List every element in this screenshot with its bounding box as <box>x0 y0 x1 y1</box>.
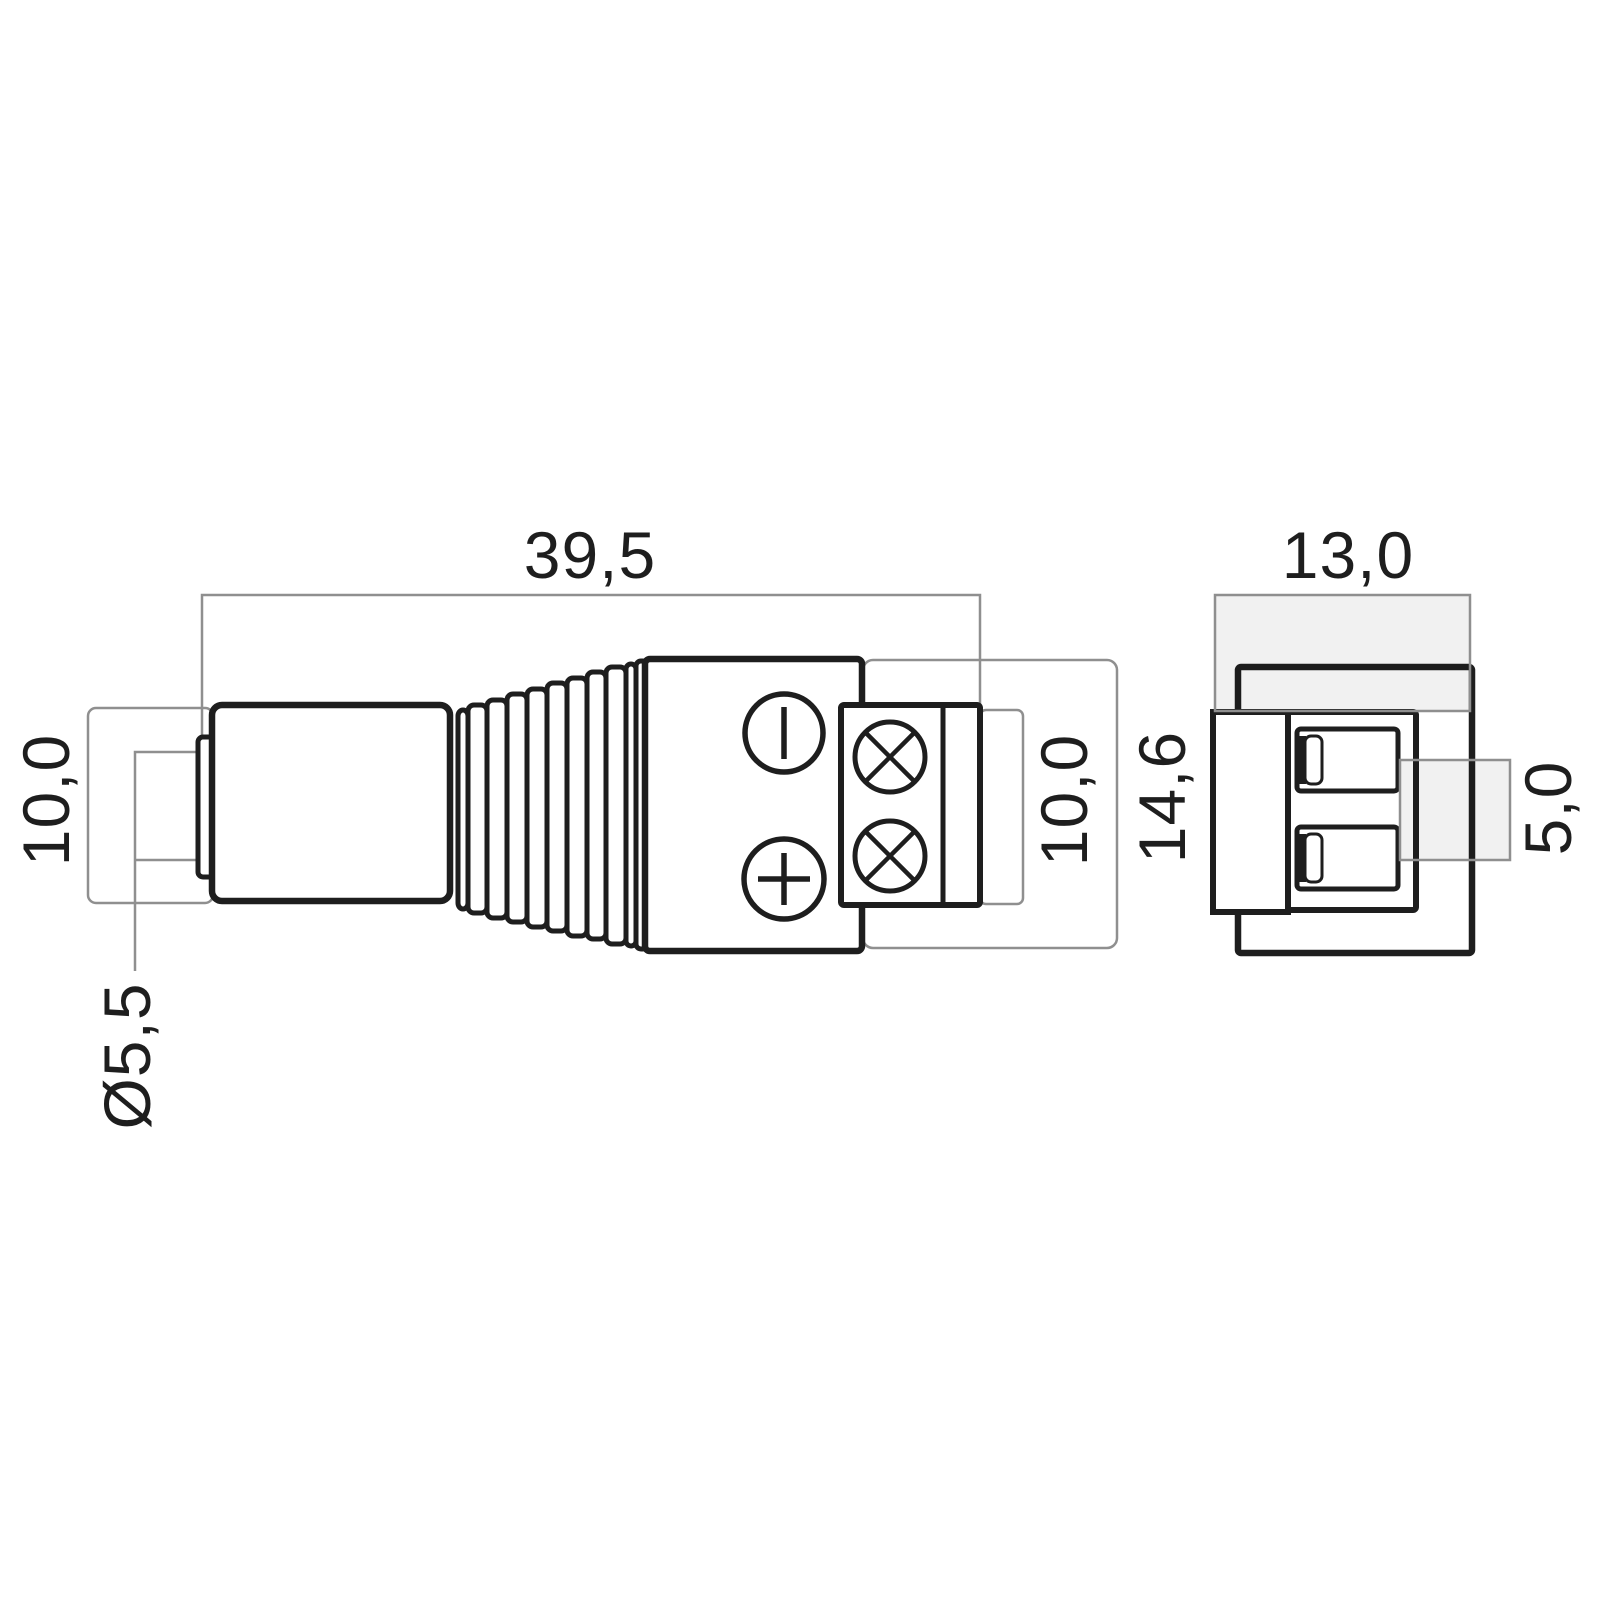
side-view <box>198 659 980 951</box>
dim-label-housing-height: 14,6 <box>1125 731 1199 863</box>
wire-clamp-lever <box>1305 736 1322 784</box>
wire-clamp-lever <box>1305 834 1322 882</box>
dimension-line-tip-diameter <box>135 752 200 971</box>
wire-entry-top <box>1297 729 1398 791</box>
strain-relief-rib <box>507 694 527 922</box>
wire-entry-bottom <box>1297 827 1398 889</box>
strain-relief-rib <box>587 672 606 939</box>
strain-relief-rib <box>547 683 567 931</box>
strain-relief-rib <box>567 678 587 936</box>
dimension-box-end-width <box>1215 595 1470 711</box>
dim-label-end-width: 13,0 <box>1282 518 1414 592</box>
dim-label-tip-diameter: Ø5,5 <box>90 982 164 1129</box>
end-view-side-flange <box>1213 712 1288 912</box>
strain-relief-rib <box>468 705 487 913</box>
dim-label-terminal-height: 10,0 <box>1027 734 1101 866</box>
dimension-box-terminal-height <box>980 710 1023 904</box>
barrel-outline <box>212 705 450 901</box>
dimension-box-barrel-diameter <box>88 708 213 903</box>
strain-relief-rib <box>527 689 547 927</box>
dim-label-length: 39,5 <box>524 518 656 592</box>
strain-relief-rib <box>487 700 507 918</box>
connector-dimension-drawing: 39,5 13,0 10,0 Ø5,5 10,0 14,6 5,0 <box>0 0 1600 1600</box>
clamp-screw-top-icon <box>855 722 925 792</box>
strain-relief-ribs <box>458 661 648 949</box>
plus-screw-icon <box>744 839 824 919</box>
dim-label-pin-pitch: 5,0 <box>1511 761 1585 856</box>
dimension-box-pin-pitch <box>1400 760 1510 860</box>
technical-drawing-page: 39,5 13,0 10,0 Ø5,5 10,0 14,6 5,0 <box>0 0 1600 1600</box>
dim-label-barrel-diameter: 10,0 <box>9 734 83 866</box>
minus-screw-icon <box>745 694 823 772</box>
clamp-screw-bottom-icon <box>855 821 925 891</box>
strain-relief-rib <box>606 667 626 944</box>
